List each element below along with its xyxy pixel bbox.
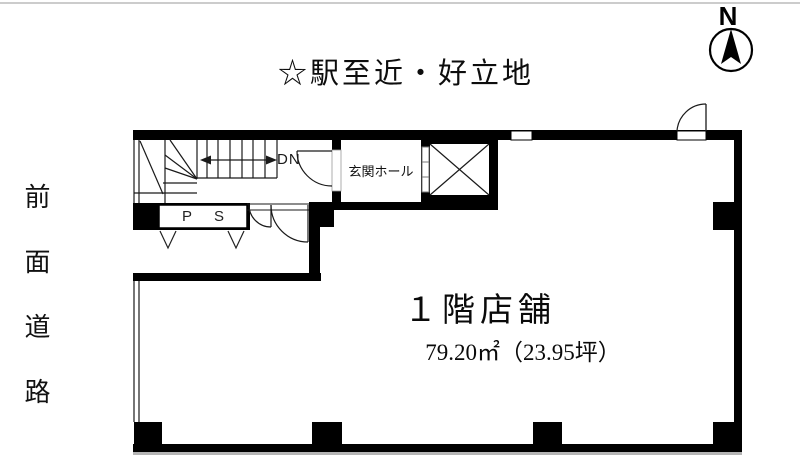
right-wall bbox=[734, 130, 742, 452]
top-border-line bbox=[0, 2, 800, 4]
stair-winder-diagonal-2 bbox=[170, 140, 197, 179]
stairs-down-label: DN bbox=[277, 151, 301, 168]
column-4 bbox=[713, 422, 742, 452]
top-entry-door-gap bbox=[677, 131, 706, 140]
shop-name-label: １階店舗 bbox=[330, 283, 630, 331]
entry-vertical-wall bbox=[309, 227, 320, 281]
compass-needle bbox=[721, 29, 741, 64]
stair-winder-diagonal-1 bbox=[140, 141, 163, 194]
hall-left-wall-upper bbox=[332, 140, 341, 150]
column-1 bbox=[134, 422, 162, 450]
top-window-opening bbox=[511, 131, 532, 140]
compass-label: N bbox=[706, 1, 750, 32]
bottom-wall-shadow bbox=[133, 452, 742, 455]
bottom-wall bbox=[133, 444, 742, 452]
page-title: ☆駅至近・好立地 bbox=[150, 50, 662, 92]
main-entry-door-large-arc bbox=[271, 205, 308, 242]
column-2 bbox=[312, 422, 342, 450]
column-3 bbox=[533, 422, 562, 450]
hall-left-wall-lower bbox=[332, 191, 341, 203]
ps-vent-mark-right bbox=[228, 231, 244, 248]
shop-top-wall bbox=[133, 273, 321, 281]
shop-area-label: 79.20㎡（23.95坪） bbox=[373, 333, 673, 367]
main-entry-door-small-arc bbox=[249, 205, 271, 227]
front-road-label: 前面道路 bbox=[18, 183, 55, 433]
wall-junction-stub bbox=[309, 210, 334, 227]
entrance-hall-label: 玄関ホール bbox=[339, 161, 423, 180]
stair-winder-diagonal-3 bbox=[165, 155, 197, 179]
pipe-space-label: P S bbox=[159, 205, 247, 228]
stair-winder-diagonal-4 bbox=[165, 168, 197, 179]
top-entry-door-swing-arc bbox=[677, 104, 706, 131]
dn-arrow-head-right bbox=[266, 156, 277, 165]
ps-vent-mark-left bbox=[160, 231, 176, 248]
top-wall bbox=[133, 130, 742, 140]
elevator-door bbox=[422, 147, 429, 192]
hall-door-swing-arc bbox=[297, 151, 332, 186]
right-wall-pillar bbox=[713, 202, 734, 230]
floor-plan-page: ☆駅至近・好立地 N 前面道路 DN P S 玄関ホール １階店舗 79.20㎡… bbox=[0, 0, 800, 458]
dn-arrow-head-left bbox=[200, 156, 211, 165]
